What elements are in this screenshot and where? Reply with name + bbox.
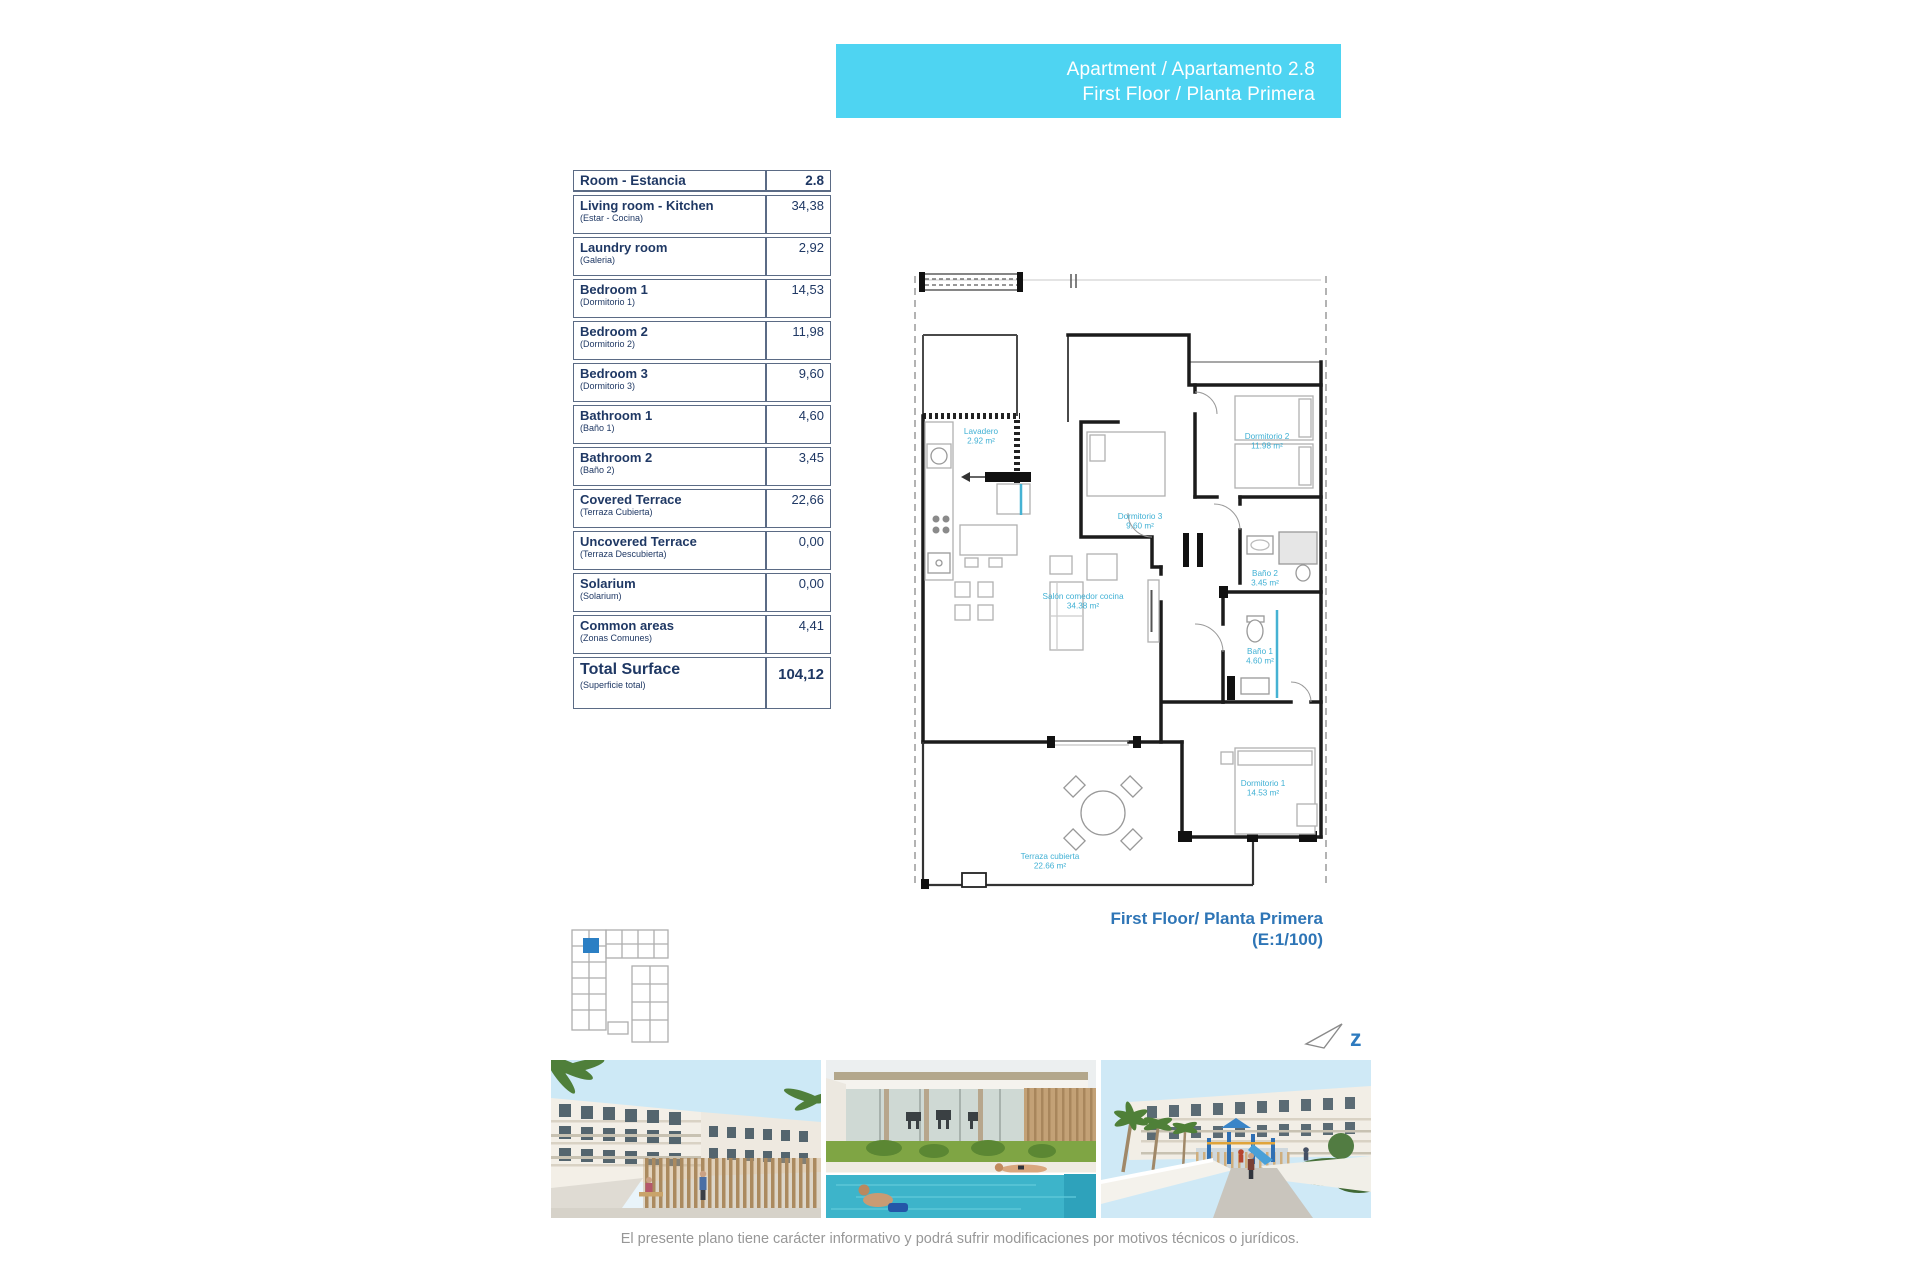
- room-area-bedroom2: 11.98 m²: [1251, 442, 1283, 451]
- surface-table: Room - Estancia 2.8 Living room - Kitche…: [573, 167, 831, 712]
- table-row: Uncovered Terrace(Terraza Descubierta) 0…: [573, 531, 831, 570]
- total-sublabel: (Superficie total): [580, 680, 761, 691]
- row-value: 2,92: [766, 237, 831, 276]
- table-row: Bedroom 3(Dormitorio 3) 9,60: [573, 363, 831, 402]
- highlighted-unit: [583, 938, 599, 953]
- row-sublabel: (Terraza Descubierta): [580, 549, 761, 560]
- row-label: Covered Terrace: [580, 492, 761, 507]
- row-label: Bedroom 2: [580, 324, 761, 339]
- header-value: 2.8: [766, 170, 831, 192]
- table-row: Solarium(Solarium) 0,00: [573, 573, 831, 612]
- room-area-living: 34.38 m²: [1067, 602, 1100, 611]
- room-area-laundry: 2.92 m²: [967, 437, 995, 446]
- render-photo-playground: [1101, 1060, 1371, 1218]
- row-value: 3,45: [766, 447, 831, 486]
- render-photo-street: [551, 1060, 821, 1218]
- row-sublabel: (Baño 1): [580, 423, 761, 434]
- table-row: Bathroom 1(Baño 1) 4,60: [573, 405, 831, 444]
- room-area-bedroom1: 14.53 m²: [1247, 789, 1280, 798]
- wood-slat-wall: [1024, 1088, 1096, 1144]
- row-sublabel: (Galeria): [580, 255, 761, 266]
- room-label-bedroom2: Dormitorio 2: [1245, 432, 1290, 441]
- north-arrow-icon: z: [1300, 1012, 1372, 1062]
- row-label: Solarium: [580, 576, 761, 591]
- table-row: Bedroom 2(Dormitorio 2) 11,98: [573, 321, 831, 360]
- row-value: 4,60: [766, 405, 831, 444]
- table-row: Bedroom 1(Dormitorio 1) 14,53: [573, 279, 831, 318]
- wood-fence: [643, 1158, 821, 1208]
- row-sublabel: (Zonas Comunes): [580, 633, 761, 644]
- row-value: 0,00: [766, 531, 831, 570]
- row-sublabel: (Dormitorio 1): [580, 297, 761, 308]
- row-label: Laundry room: [580, 240, 761, 255]
- floor-plan: Lavadero 2.92 m² Dormitorio 3 9.60 m² Do…: [905, 272, 1337, 922]
- row-label: Living room - Kitchen: [580, 198, 761, 213]
- room-label-bedroom3: Dormitorio 3: [1118, 512, 1163, 521]
- render-photo-pool: [826, 1060, 1096, 1218]
- pool-deck: [826, 1162, 1096, 1174]
- sliding-door: [1051, 741, 1129, 745]
- key-plan-drawing: [562, 918, 684, 1052]
- room-label-living: Salón comedor cocina: [1042, 592, 1123, 601]
- table-row: Covered Terrace(Terraza Cubierta) 22,66: [573, 489, 831, 528]
- lawn: [826, 1140, 1096, 1163]
- plan-caption: First Floor/ Planta Primera (E:1/100): [1023, 908, 1323, 950]
- total-label: Total Surface: [580, 660, 761, 680]
- terrace-pillar: [962, 873, 986, 887]
- row-value: 14,53: [766, 279, 831, 318]
- row-label: Bathroom 2: [580, 450, 761, 465]
- row-label: Common areas: [580, 618, 761, 633]
- row-label: Bedroom 1: [580, 282, 761, 297]
- banner-line2: First Floor / Planta Primera: [836, 82, 1315, 107]
- room-area-terrace: 22.66 m²: [1034, 862, 1067, 871]
- row-sublabel: (Baño 2): [580, 465, 761, 476]
- row-value: 4,41: [766, 615, 831, 654]
- table-row: Living room - Kitchen(Estar - Cocina) 34…: [573, 195, 831, 234]
- room-area-bath1: 4.60 m²: [1246, 657, 1274, 666]
- building-key-plan: [562, 918, 684, 1052]
- row-value: 22,66: [766, 489, 831, 528]
- vent-arrow: [961, 472, 985, 482]
- north-letter: z: [1350, 1025, 1362, 1051]
- room-label-bath2: Baño 2: [1252, 569, 1278, 578]
- pool: [826, 1173, 1096, 1219]
- row-sublabel: (Dormitorio 2): [580, 339, 761, 350]
- header-label: Room - Estancia: [580, 173, 761, 188]
- row-value: 11,98: [766, 321, 831, 360]
- plan-caption-line2: (E:1/100): [1023, 929, 1323, 950]
- row-label: Uncovered Terrace: [580, 534, 761, 549]
- disclaimer-text: El presente plano tiene carácter informa…: [500, 1231, 1420, 1247]
- ground: [551, 1208, 821, 1218]
- row-label: Bedroom 3: [580, 366, 761, 381]
- row-value: 0,00: [766, 573, 831, 612]
- row-sublabel: (Solarium): [580, 591, 761, 602]
- table-row: Bathroom 2(Baño 2) 3,45: [573, 447, 831, 486]
- table-row: Common areas(Zonas Comunes) 4,41: [573, 615, 831, 654]
- plan-caption-line1: First Floor/ Planta Primera: [1023, 908, 1323, 929]
- upper-balcony-strip: [919, 272, 1076, 292]
- room-area-bath2: 3.45 m²: [1251, 579, 1279, 588]
- plan-sheet: Apartment / Apartamento 2.8 First Floor …: [0, 0, 1920, 1280]
- total-value: 104,12: [766, 657, 831, 709]
- room-area-bedroom3: 9.60 m²: [1126, 522, 1154, 531]
- table-row: Laundry room(Galeria) 2,92: [573, 237, 831, 276]
- table-header-row: Room - Estancia 2.8: [573, 170, 831, 192]
- room-label-bedroom1: Dormitorio 1: [1241, 779, 1286, 788]
- floor-plan-drawing: Lavadero 2.92 m² Dormitorio 3 9.60 m² Do…: [905, 272, 1337, 922]
- room-label-terrace: Terraza cubierta: [1021, 852, 1080, 861]
- apartment-banner: Apartment / Apartamento 2.8 First Floor …: [836, 44, 1341, 118]
- row-value: 9,60: [766, 363, 831, 402]
- row-label: Bathroom 1: [580, 408, 761, 423]
- room-label-bath1: Baño 1: [1247, 647, 1273, 656]
- row-sublabel: (Dormitorio 3): [580, 381, 761, 392]
- row-value: 34,38: [766, 195, 831, 234]
- table-total-row: Total Surface(Superficie total) 104,12: [573, 657, 831, 709]
- row-sublabel: (Terraza Cubierta): [580, 507, 761, 518]
- banner-line1: Apartment / Apartamento 2.8: [836, 57, 1315, 82]
- row-sublabel: (Estar - Cocina): [580, 213, 761, 224]
- room-label-laundry: Lavadero: [964, 427, 999, 436]
- north-arrow: z: [1300, 1012, 1372, 1062]
